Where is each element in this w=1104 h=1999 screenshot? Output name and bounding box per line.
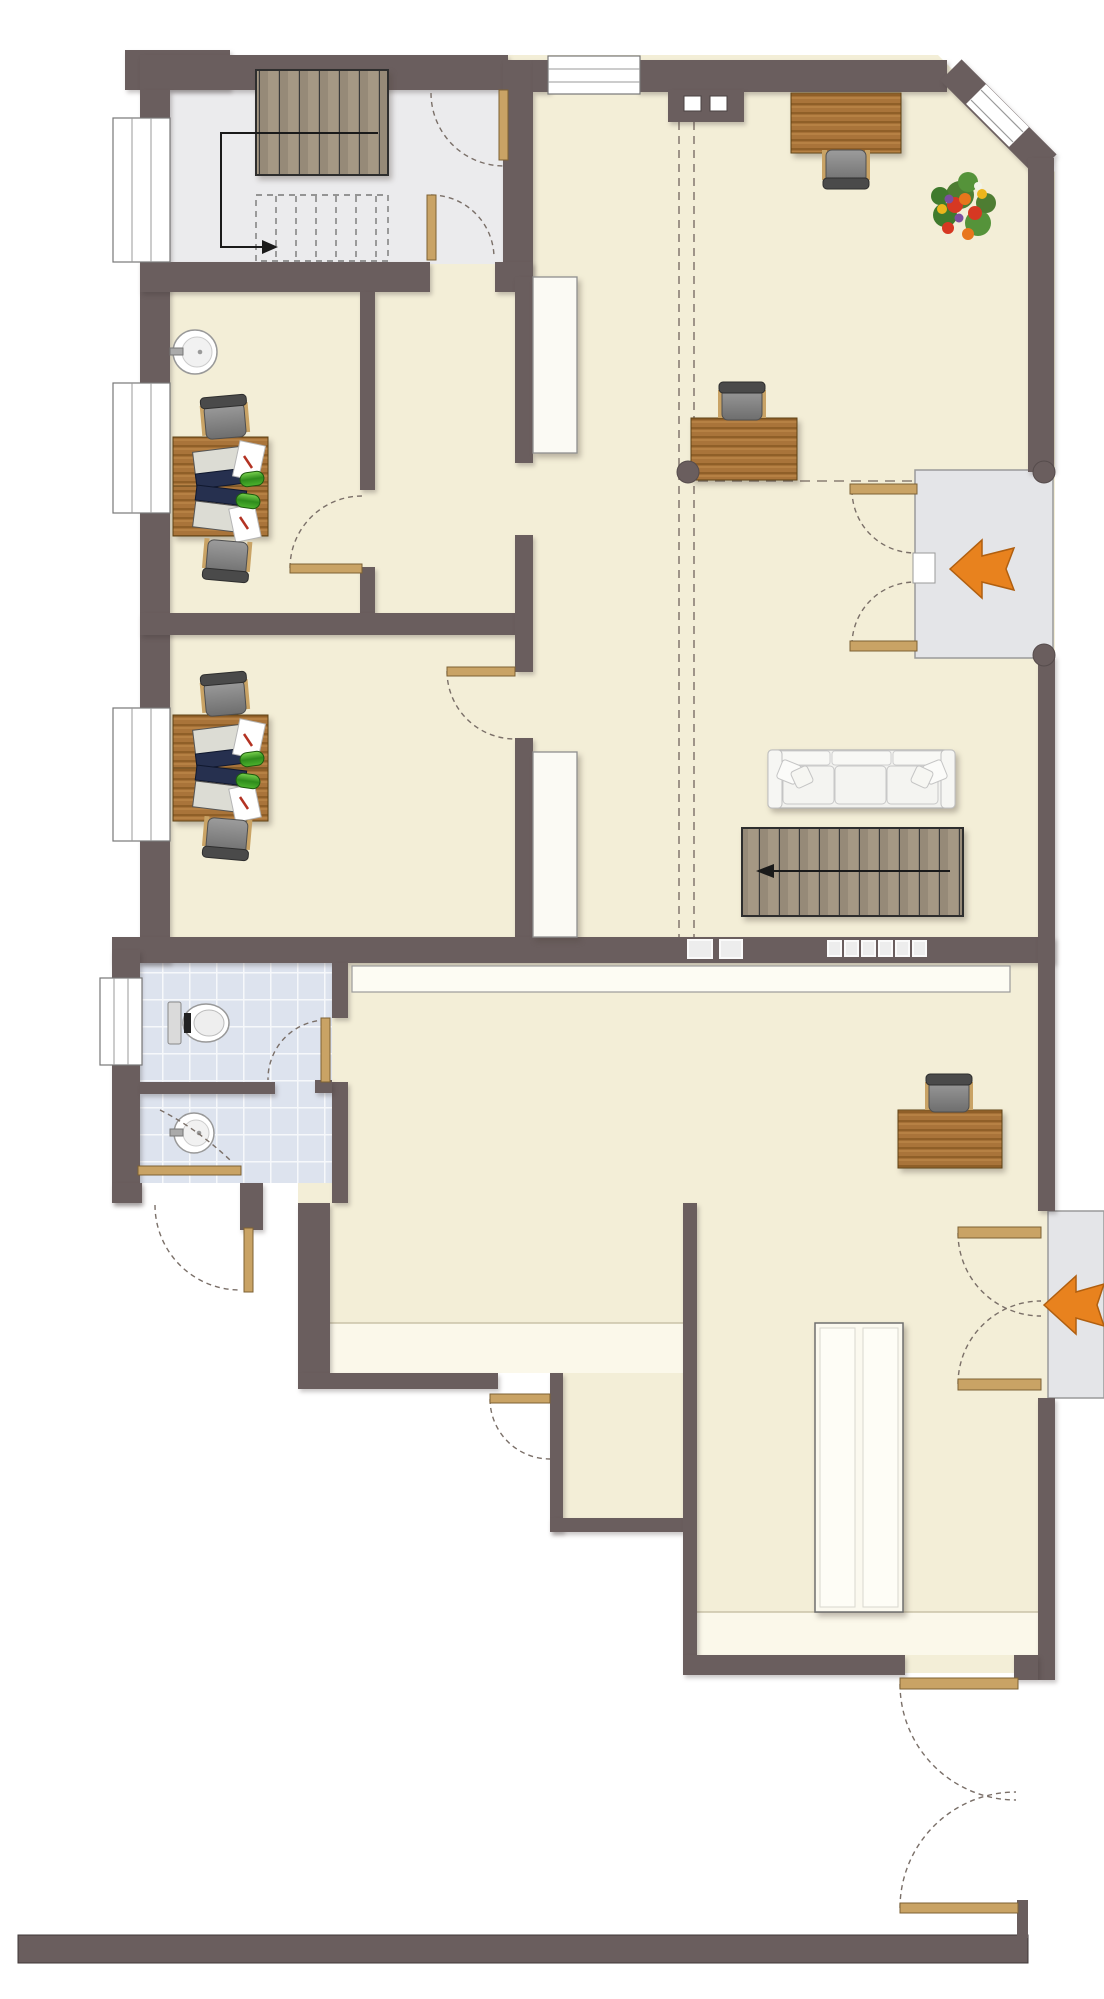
- chimney-flue: [684, 96, 701, 111]
- door-leaf[interactable]: [850, 641, 917, 651]
- wall: [332, 1082, 348, 1203]
- stairs-flight[interactable]: [256, 70, 388, 175]
- flower: [937, 204, 947, 214]
- office-chair-back: [926, 1074, 972, 1085]
- desk[interactable]: [791, 93, 901, 153]
- window[interactable]: [100, 978, 142, 1065]
- flower: [942, 222, 954, 234]
- wall: [637, 60, 947, 92]
- wall: [140, 613, 515, 635]
- sofa-back-cushion: [832, 751, 891, 765]
- wall: [112, 1183, 142, 1203]
- cabinet[interactable]: [533, 752, 577, 937]
- sink-basin: [183, 1120, 209, 1146]
- porch-door-gap: [913, 553, 935, 583]
- plant-foliage: [958, 172, 978, 192]
- wall: [1014, 1655, 1038, 1680]
- flower: [974, 182, 982, 190]
- gate-leaf[interactable]: [900, 1903, 1018, 1913]
- window[interactable]: [113, 383, 170, 513]
- wall: [140, 262, 430, 292]
- glass-block: [862, 941, 875, 956]
- wall: [298, 1203, 330, 1373]
- wall: [515, 738, 533, 937]
- floor-light-strip-bottom: [697, 1612, 1038, 1655]
- wall: [240, 1183, 263, 1230]
- wall: [1038, 655, 1055, 1211]
- floor-plan: [0, 0, 1104, 1999]
- door-leaf[interactable]: [321, 1018, 330, 1082]
- door-leaf[interactable]: [447, 667, 515, 676]
- wall: [683, 1655, 905, 1675]
- sink-tap: [170, 348, 183, 355]
- window[interactable]: [113, 708, 170, 841]
- glass-block: [688, 940, 712, 958]
- column-post: [1033, 644, 1055, 666]
- floor-plan-page: [0, 0, 1104, 1999]
- office-chair-back: [719, 382, 765, 393]
- fence-wall: [1017, 1900, 1028, 1938]
- floor-tiles-wc: [140, 963, 332, 1183]
- door-leaf[interactable]: [490, 1394, 550, 1403]
- sink-tap: [170, 1129, 183, 1136]
- door-leaf[interactable]: [958, 1379, 1041, 1390]
- column-post: [677, 461, 699, 483]
- desk[interactable]: [898, 1110, 1002, 1168]
- window[interactable]: [113, 118, 170, 262]
- glass-block: [879, 941, 892, 956]
- door-leaf[interactable]: [958, 1227, 1041, 1238]
- office-chair-back: [823, 178, 869, 189]
- wall: [550, 1518, 683, 1532]
- glass-block: [720, 940, 742, 958]
- wall: [515, 535, 533, 672]
- door-leaf[interactable]: [244, 1228, 253, 1292]
- wall: [515, 277, 533, 463]
- flower: [962, 228, 974, 240]
- exterior-cut: [1055, 0, 1104, 1211]
- door-leaf[interactable]: [499, 90, 508, 160]
- tall-cabinet-door[interactable]: [820, 1328, 855, 1607]
- door-leaf[interactable]: [850, 484, 917, 494]
- exterior-cut: [683, 1673, 1104, 1903]
- counter-sideboard[interactable]: [352, 966, 1010, 992]
- sofa-seat-cushion: [835, 766, 886, 804]
- glass-block: [845, 941, 858, 956]
- glass-block: [913, 941, 926, 956]
- wall: [1038, 1398, 1055, 1680]
- flower: [945, 195, 954, 204]
- wall: [360, 567, 375, 615]
- window[interactable]: [548, 56, 640, 94]
- wall: [332, 963, 348, 1018]
- door-leaf[interactable]: [290, 564, 362, 573]
- tall-cabinet-door[interactable]: [863, 1328, 898, 1607]
- wall: [1028, 158, 1054, 472]
- door-leaf[interactable]: [138, 1166, 241, 1175]
- sink-basin: [182, 337, 212, 367]
- door-leaf[interactable]: [900, 1678, 1018, 1689]
- cabinet[interactable]: [533, 277, 577, 453]
- wall: [298, 1373, 498, 1389]
- column-post: [1033, 461, 1055, 483]
- wall: [683, 1203, 697, 1655]
- toilet-seat: [194, 1010, 224, 1036]
- exterior-cut: [0, 1532, 685, 1930]
- wall: [550, 1373, 563, 1532]
- glass-block: [896, 941, 909, 956]
- toilet-tank: [168, 1002, 181, 1044]
- floor-light-strip-left: [330, 1323, 683, 1373]
- wall: [668, 90, 744, 122]
- chimney-flue: [710, 96, 727, 111]
- sink-drain: [198, 350, 203, 355]
- fence-wall: [18, 1935, 1028, 1963]
- glass-block: [828, 941, 841, 956]
- flower: [968, 206, 982, 220]
- flower: [955, 214, 964, 223]
- wall: [140, 1082, 275, 1094]
- wall: [360, 292, 375, 490]
- toilet-hinge: [184, 1013, 191, 1033]
- flower: [959, 193, 971, 205]
- flower: [977, 189, 987, 199]
- door-leaf[interactable]: [427, 195, 436, 260]
- desk[interactable]: [691, 418, 797, 480]
